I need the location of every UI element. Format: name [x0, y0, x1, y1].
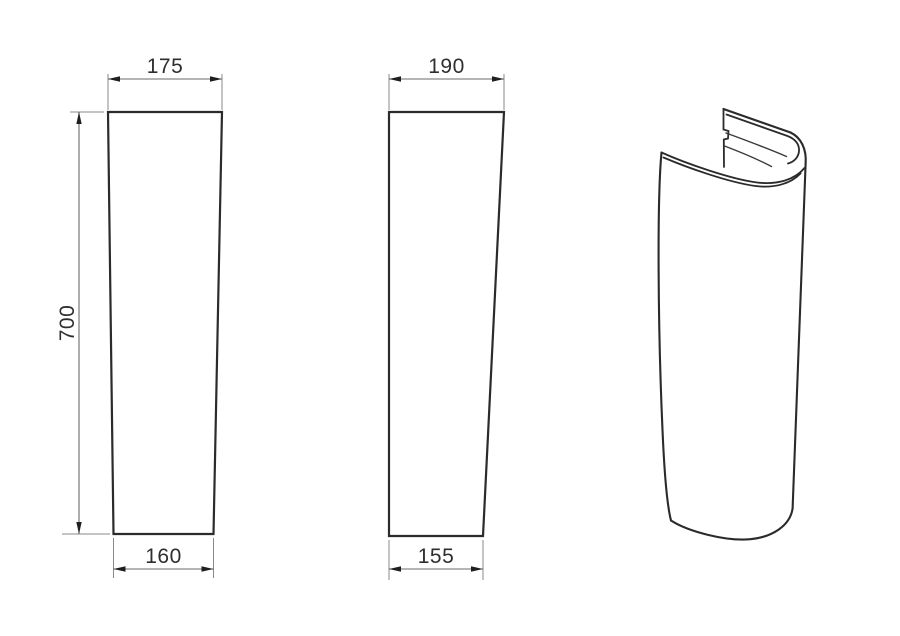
front-width-bottom-arrow-left	[114, 566, 126, 571]
front-height-value: 700	[56, 305, 79, 342]
drawing-canvas: 175 700 160	[0, 0, 900, 636]
pedestal-front-rim-outer-curve	[662, 153, 805, 184]
pedestal-right-edge	[793, 164, 806, 509]
side-view: 190 155	[389, 55, 504, 580]
pedestal-inner-face-line-upper	[726, 133, 787, 157]
front-width-top-value: 175	[147, 55, 184, 78]
pedestal-dimension-drawing: 175 700 160	[0, 0, 900, 636]
front-width-bottom-arrow-right	[202, 566, 214, 571]
pedestal-inner-face-line-lower	[725, 146, 772, 167]
front-width-top-arrow-right	[210, 76, 222, 81]
side-view-outline	[389, 112, 504, 536]
pedestal-back-top-edge	[724, 109, 791, 133]
front-width-top-arrow-left	[108, 76, 120, 81]
front-view: 175 700 160	[56, 55, 222, 578]
perspective-view	[659, 109, 806, 540]
side-depth-top-value: 190	[428, 55, 465, 78]
front-width-bottom-value: 160	[145, 545, 182, 568]
front-height-arrow-top	[76, 112, 81, 124]
pedestal-back-left-edge-notch	[724, 109, 729, 167]
front-width-bottom-dimension: 160	[114, 538, 214, 578]
side-depth-top-dimension: 190	[389, 55, 504, 110]
side-depth-bottom-dimension: 155	[389, 540, 483, 580]
front-view-outline	[108, 112, 222, 534]
side-depth-bottom-value: 155	[418, 545, 455, 568]
front-height-dimension: 700	[56, 112, 110, 534]
pedestal-left-edge	[659, 153, 671, 521]
front-height-arrow-bottom	[76, 522, 81, 534]
pedestal-bottom-edge	[671, 509, 793, 540]
side-depth-top-arrow-right	[492, 76, 504, 81]
side-depth-bottom-arrow-left	[389, 566, 401, 571]
side-depth-top-arrow-left	[389, 76, 401, 81]
side-depth-bottom-arrow-right	[471, 566, 483, 571]
front-width-top-dimension: 175	[108, 55, 222, 110]
